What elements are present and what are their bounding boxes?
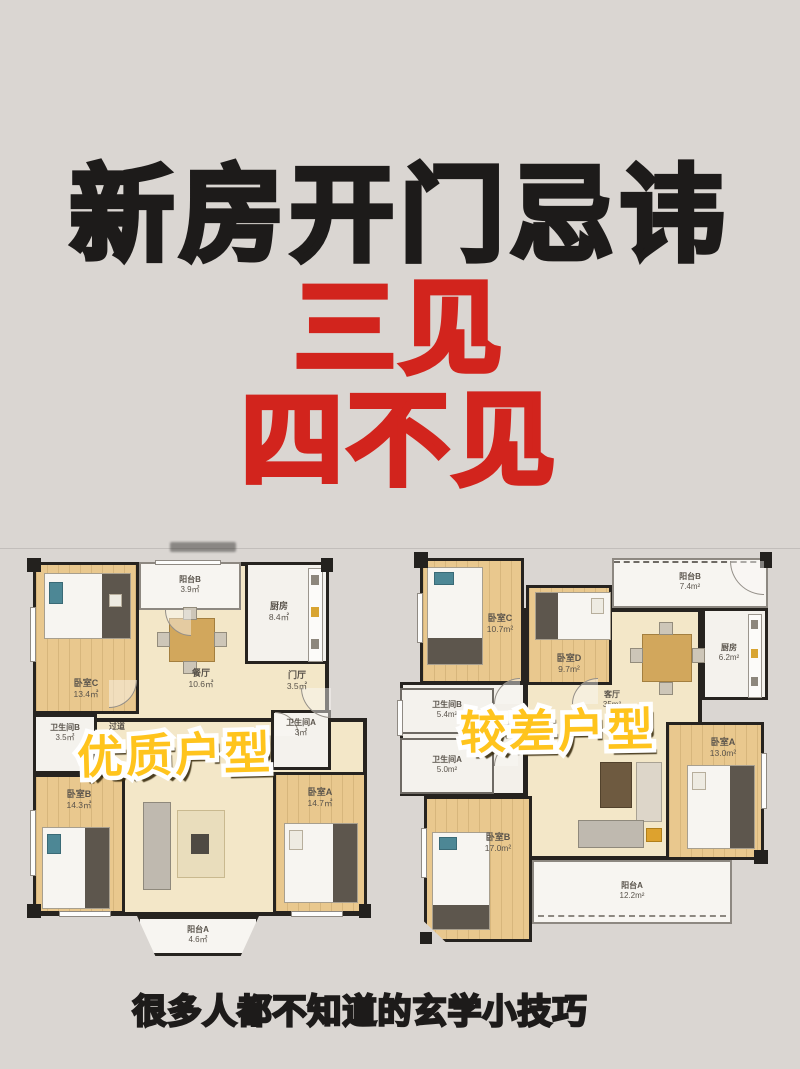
room-bedroom-a: 卧室A14.7㎡ bbox=[273, 772, 367, 914]
sofa bbox=[578, 820, 644, 848]
wall-block bbox=[321, 558, 333, 572]
wall-block bbox=[420, 932, 432, 944]
window bbox=[397, 700, 403, 736]
floorplan-bad: 卧室C10.7m² 卧室D9.7m² 阳台B7.4m² 厨房6.2m² bbox=[396, 548, 796, 964]
window bbox=[59, 911, 111, 917]
subtitle-line-2: 四不见 bbox=[0, 390, 800, 492]
room-kitchen: 厨房8.4㎡ bbox=[245, 562, 329, 664]
chair bbox=[214, 632, 227, 647]
window bbox=[417, 593, 423, 643]
chair bbox=[183, 661, 197, 674]
sofa bbox=[143, 802, 171, 890]
bed bbox=[284, 823, 358, 903]
wall-block bbox=[359, 904, 371, 918]
watermark bbox=[170, 542, 236, 552]
room-bedroom-b: 卧室B14.3㎡ bbox=[33, 774, 125, 914]
chair bbox=[659, 682, 673, 695]
chair bbox=[157, 632, 170, 647]
wall-block bbox=[754, 850, 768, 864]
floorplan-good: 卧室C13.4㎡ 阳台B3.9㎡ 厨房8.4㎡ 餐厅10.6㎡ 门厅3.5㎡ 卫… bbox=[15, 552, 390, 958]
kitchen-counter bbox=[308, 568, 323, 662]
wall-block bbox=[414, 552, 428, 568]
kitchen-counter bbox=[748, 614, 762, 698]
window bbox=[30, 810, 36, 876]
bed bbox=[42, 827, 110, 909]
chair bbox=[659, 622, 673, 635]
shelf bbox=[636, 762, 662, 822]
window bbox=[291, 911, 343, 917]
page-title: 新房开门忌讳 bbox=[0, 164, 800, 268]
bed bbox=[687, 765, 755, 849]
bed bbox=[535, 592, 611, 640]
overlay-bad-label: 较差户型 较差户型 bbox=[460, 706, 657, 755]
dining-table bbox=[642, 634, 692, 682]
wall-block bbox=[27, 904, 41, 918]
coffee-table bbox=[191, 834, 209, 854]
room-kitchen: 厨房6.2m² bbox=[702, 608, 768, 700]
tv-cabinet bbox=[600, 762, 632, 808]
room-bedroom-c: 卧室C10.7m² bbox=[420, 558, 524, 684]
chair bbox=[692, 648, 705, 663]
caption: 很多人都不知道的玄学小技巧 bbox=[30, 984, 690, 1033]
overlay-good-label: 优质户型 优质户型 bbox=[76, 729, 273, 780]
room-balcony-b: 阳台B3.9㎡ bbox=[139, 562, 241, 610]
window bbox=[761, 753, 767, 809]
wall-block bbox=[27, 558, 41, 572]
bed bbox=[44, 573, 131, 639]
window bbox=[421, 828, 427, 878]
bed bbox=[427, 567, 483, 665]
accent-stool bbox=[646, 828, 662, 842]
room-bedroom-a: 卧室A13.0m² bbox=[666, 722, 764, 860]
window bbox=[30, 607, 36, 662]
room-balcony-a: 阳台A4.6㎡ bbox=[137, 916, 259, 956]
room-balcony-a: 阳台A12.2m² bbox=[532, 860, 732, 924]
window bbox=[155, 560, 221, 565]
bed bbox=[432, 832, 490, 930]
chair bbox=[630, 648, 643, 663]
poster: 新房开门忌讳 三见 四不见 卧室C13.4㎡ 阳台B3.9㎡ 厨房8.4 bbox=[0, 0, 800, 1069]
room-bedroom-b: 卧室B17.0m² bbox=[424, 796, 532, 942]
subtitle-line-1: 三见 bbox=[0, 278, 800, 380]
room-bedroom-d: 卧室D9.7m² bbox=[526, 585, 612, 685]
